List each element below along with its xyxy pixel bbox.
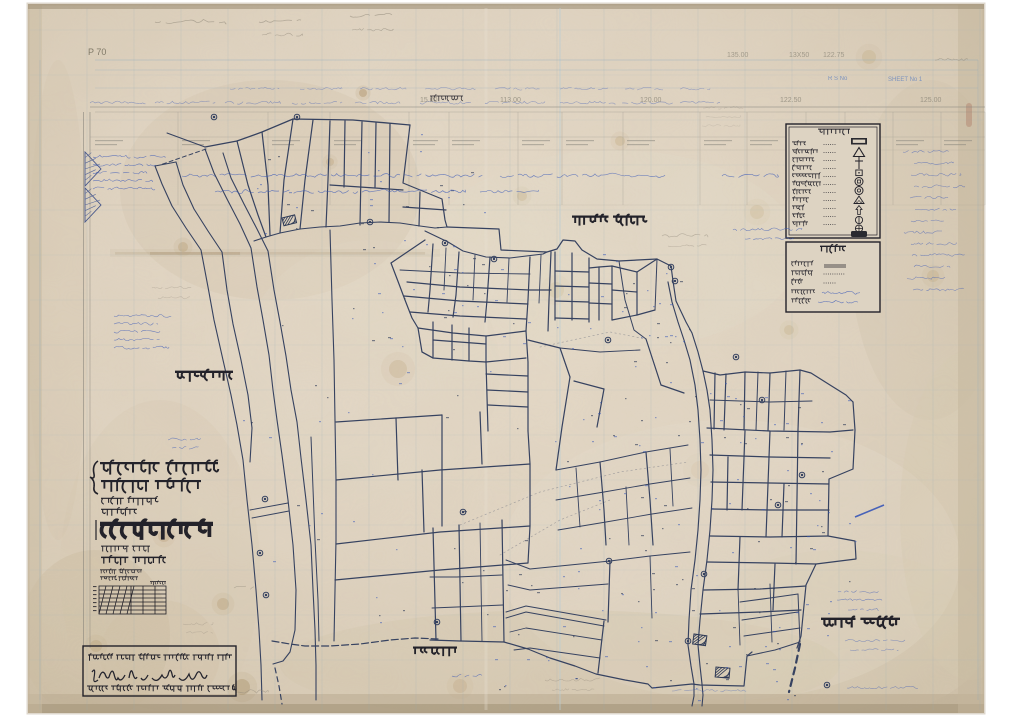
svg-text:15.00: 15.00 xyxy=(420,97,438,104)
svg-text:P 70: P 70 xyxy=(88,47,106,57)
svg-text:13X50: 13X50 xyxy=(789,52,809,59)
svg-text:125.00: 125.00 xyxy=(920,97,942,104)
svg-text:120.00: 120.00 xyxy=(640,97,662,104)
svg-text:135.00: 135.00 xyxy=(727,52,749,59)
svg-text:R S No: R S No xyxy=(828,76,848,82)
svg-text:SHEET No 1: SHEET No 1 xyxy=(888,77,923,83)
svg-text:122.75: 122.75 xyxy=(823,52,845,59)
svg-text:113.00: 113.00 xyxy=(500,97,521,104)
svg-text:122.50: 122.50 xyxy=(780,97,802,104)
